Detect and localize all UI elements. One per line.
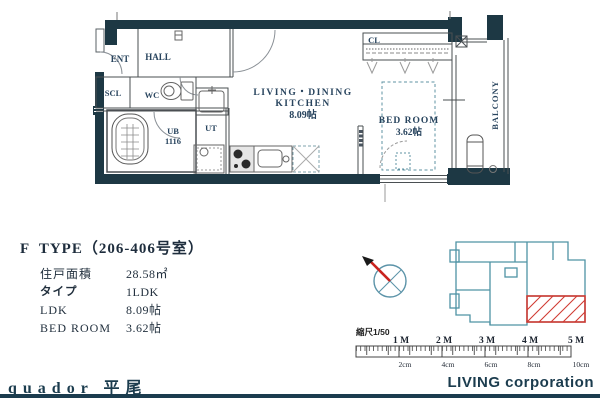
partition-small-text <box>359 130 363 147</box>
scale-cm-5: 10cm <box>573 360 590 369</box>
bed-area-dashed <box>380 82 435 170</box>
door-arcs <box>154 30 275 138</box>
info-value: 1LDK <box>126 283 159 301</box>
company-logo: LIVING corporation <box>447 374 594 391</box>
info-row-area: 住戸面積 28.58㎡ <box>40 265 204 283</box>
site-key-plan <box>450 242 585 325</box>
scale-meter-5: 5 M <box>568 336 584 346</box>
scale-meter-1: 1 M <box>393 336 409 346</box>
scale-cm-1: 2cm <box>399 360 412 369</box>
bedroom-window <box>380 174 447 184</box>
scale-meter-3: 3 M <box>479 336 495 346</box>
intercom-icon <box>175 31 182 40</box>
info-label: BED ROOM <box>40 319 126 337</box>
closet-detail <box>366 49 449 73</box>
info-label: 住戸面積 <box>40 265 126 283</box>
unit-info-rows: 住戸面積 28.58㎡ タイプ 1LDK LDK 8.09帖 BED ROOM … <box>40 265 204 337</box>
room-label-ldk-size: 8.09帖 <box>289 108 317 121</box>
info-value: 28.58㎡ <box>126 265 168 283</box>
outdoor-unit-icon <box>467 135 483 173</box>
scale-bar: 縮尺1/50 1 M 2 M 3 M 4 M 5 M 2cm 4cm 6cm 8… <box>356 327 589 369</box>
floorplan-sheet: ENT HALL SCL WC UB 1116 UT LIVING・DINING… <box>0 0 600 406</box>
info-value: 8.09帖 <box>126 301 162 319</box>
stove-icon <box>230 146 254 172</box>
room-label-ldk-1: LIVING・DINING <box>253 88 352 98</box>
scale-caption: 縮尺1/50 <box>356 327 390 337</box>
room-label-ent: ENT <box>111 54 130 64</box>
interior-walls <box>96 29 452 174</box>
north-compass-icon <box>362 256 406 297</box>
floorplan-drawing: ENT HALL SCL WC UB 1116 UT LIVING・DINING… <box>0 0 600 406</box>
scale-cm-4: 8cm <box>528 360 541 369</box>
info-label: LDK <box>40 301 126 319</box>
room-label-ldk-2: KITCHEN <box>275 99 330 109</box>
room-label-ub: UB <box>167 126 179 136</box>
room-label-balcony: BALCONY <box>490 80 500 130</box>
kitchen-sink-icon <box>254 146 292 172</box>
info-row-ldk: LDK 8.09帖 <box>40 301 204 319</box>
info-value: 3.62帖 <box>126 319 162 337</box>
room-label-bedroom-size: 3.62帖 <box>396 126 423 138</box>
room-label-ub-size: 1116 <box>165 136 181 146</box>
scale-cm-2: 4cm <box>442 360 455 369</box>
unit-highlight-icon <box>527 296 585 322</box>
scale-meter-4: 4 M <box>522 336 538 346</box>
footer-rule <box>0 394 600 398</box>
unit-info-block: F TYPE（206-406号室） 住戸面積 28.58㎡ タイプ 1LDK L… <box>20 237 204 337</box>
washer-space-icon <box>194 145 224 173</box>
scale-meter-2: 2 M <box>436 336 452 346</box>
info-row-bedroom: BED ROOM 3.62帖 <box>40 319 204 337</box>
room-label-ut: UT <box>205 123 217 133</box>
fridge-space-icon <box>293 146 319 172</box>
toilet-icon <box>161 82 193 100</box>
unit-type-title: F TYPE（206-406号室） <box>20 237 204 258</box>
bathtub-icon <box>112 114 148 164</box>
room-label-wc: WC <box>145 90 160 100</box>
info-row-type: タイプ 1LDK <box>40 283 204 301</box>
scale-cm-3: 6cm <box>485 360 498 369</box>
room-label-cl: CL <box>368 35 380 45</box>
room-label-hall: HALL <box>145 52 171 62</box>
room-label-scl: SCL <box>105 88 122 98</box>
room-label-bedroom: BED ROOM <box>379 116 440 126</box>
info-label: タイプ <box>40 283 126 301</box>
